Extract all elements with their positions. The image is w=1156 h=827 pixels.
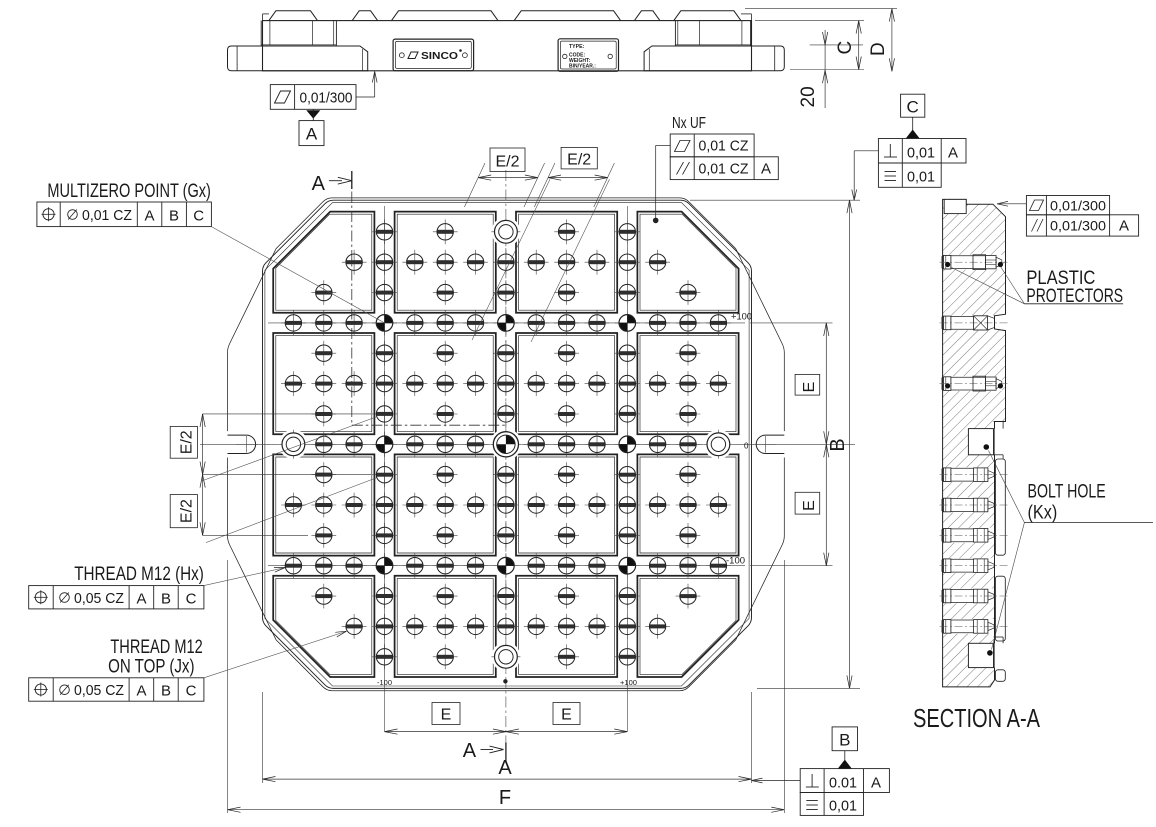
svg-text:A: A <box>498 757 512 779</box>
svg-text:A: A <box>463 740 477 762</box>
svg-text:-100: -100 <box>377 678 392 687</box>
svg-text:B: B <box>839 731 850 750</box>
svg-text:E/2: E/2 <box>179 499 196 523</box>
svg-text:E/2: E/2 <box>567 152 591 169</box>
svg-text:+100: +100 <box>731 312 752 322</box>
svg-text:0,01 CZ: 0,01 CZ <box>699 161 749 177</box>
svg-text:THREAD M12: THREAD M12 <box>110 637 202 658</box>
svg-text:0,01/300: 0,01/300 <box>1050 198 1106 214</box>
svg-text:0,01/300: 0,01/300 <box>300 90 353 107</box>
svg-text:B: B <box>169 207 179 224</box>
svg-text:0,01/300: 0,01/300 <box>1050 218 1106 234</box>
svg-text:A: A <box>144 207 154 224</box>
svg-text:A: A <box>871 775 881 792</box>
svg-text:ON TOP (Jx): ON TOP (Jx) <box>108 657 194 678</box>
svg-text:Nx UF: Nx UF <box>672 115 706 132</box>
svg-text:SECTION A-A: SECTION A-A <box>913 703 1041 733</box>
svg-text:B: B <box>161 683 171 700</box>
svg-text:A: A <box>761 161 771 178</box>
svg-text:0,01: 0,01 <box>829 798 857 815</box>
svg-text:0.01: 0.01 <box>829 775 857 792</box>
svg-text:20: 20 <box>798 86 819 107</box>
svg-text:MULTIZERO POINT (Gx): MULTIZERO POINT (Gx) <box>47 181 211 202</box>
svg-text:C: C <box>907 98 919 117</box>
svg-text:D: D <box>868 42 889 56</box>
svg-text:E: E <box>441 707 452 724</box>
svg-text:C: C <box>193 207 204 224</box>
svg-text:A: A <box>312 173 326 195</box>
svg-text:0,01: 0,01 <box>907 169 935 186</box>
svg-text:E/2: E/2 <box>179 430 196 454</box>
svg-text:B: B <box>161 590 171 607</box>
svg-text:A: A <box>1119 218 1129 235</box>
svg-text:SINCO: SINCO <box>421 50 458 62</box>
svg-text:0,01: 0,01 <box>907 145 935 162</box>
svg-text:F: F <box>499 787 511 809</box>
svg-text:A: A <box>306 125 318 144</box>
svg-text:E/2: E/2 <box>496 154 520 171</box>
svg-text:0,01 CZ: 0,01 CZ <box>699 139 749 155</box>
svg-text:BIN/YEAR.:: BIN/YEAR.: <box>569 64 596 70</box>
svg-text:B: B <box>827 438 849 451</box>
svg-text:C: C <box>186 683 197 700</box>
svg-text:0,05 CZ: 0,05 CZ <box>74 683 124 699</box>
svg-text:0,05 CZ: 0,05 CZ <box>74 591 124 607</box>
svg-text:+100: +100 <box>620 678 637 687</box>
svg-text:E: E <box>561 707 572 724</box>
svg-text:A: A <box>136 590 146 607</box>
svg-text:BOLT HOLE: BOLT HOLE <box>1028 482 1106 503</box>
svg-text:E: E <box>801 500 818 511</box>
svg-text:-100: -100 <box>726 556 745 566</box>
svg-text:A: A <box>136 683 146 700</box>
svg-text:A: A <box>948 145 958 162</box>
svg-text:C: C <box>835 41 856 55</box>
svg-text:0: 0 <box>744 442 749 451</box>
svg-text:(Kx): (Kx) <box>1028 503 1058 524</box>
svg-text:0,01 CZ: 0,01 CZ <box>82 208 132 224</box>
svg-text:TYPE:: TYPE: <box>569 44 585 50</box>
svg-text:E: E <box>801 382 818 393</box>
svg-text:THREAD M12 (Hx): THREAD M12 (Hx) <box>74 564 204 585</box>
svg-text:C: C <box>186 590 197 607</box>
